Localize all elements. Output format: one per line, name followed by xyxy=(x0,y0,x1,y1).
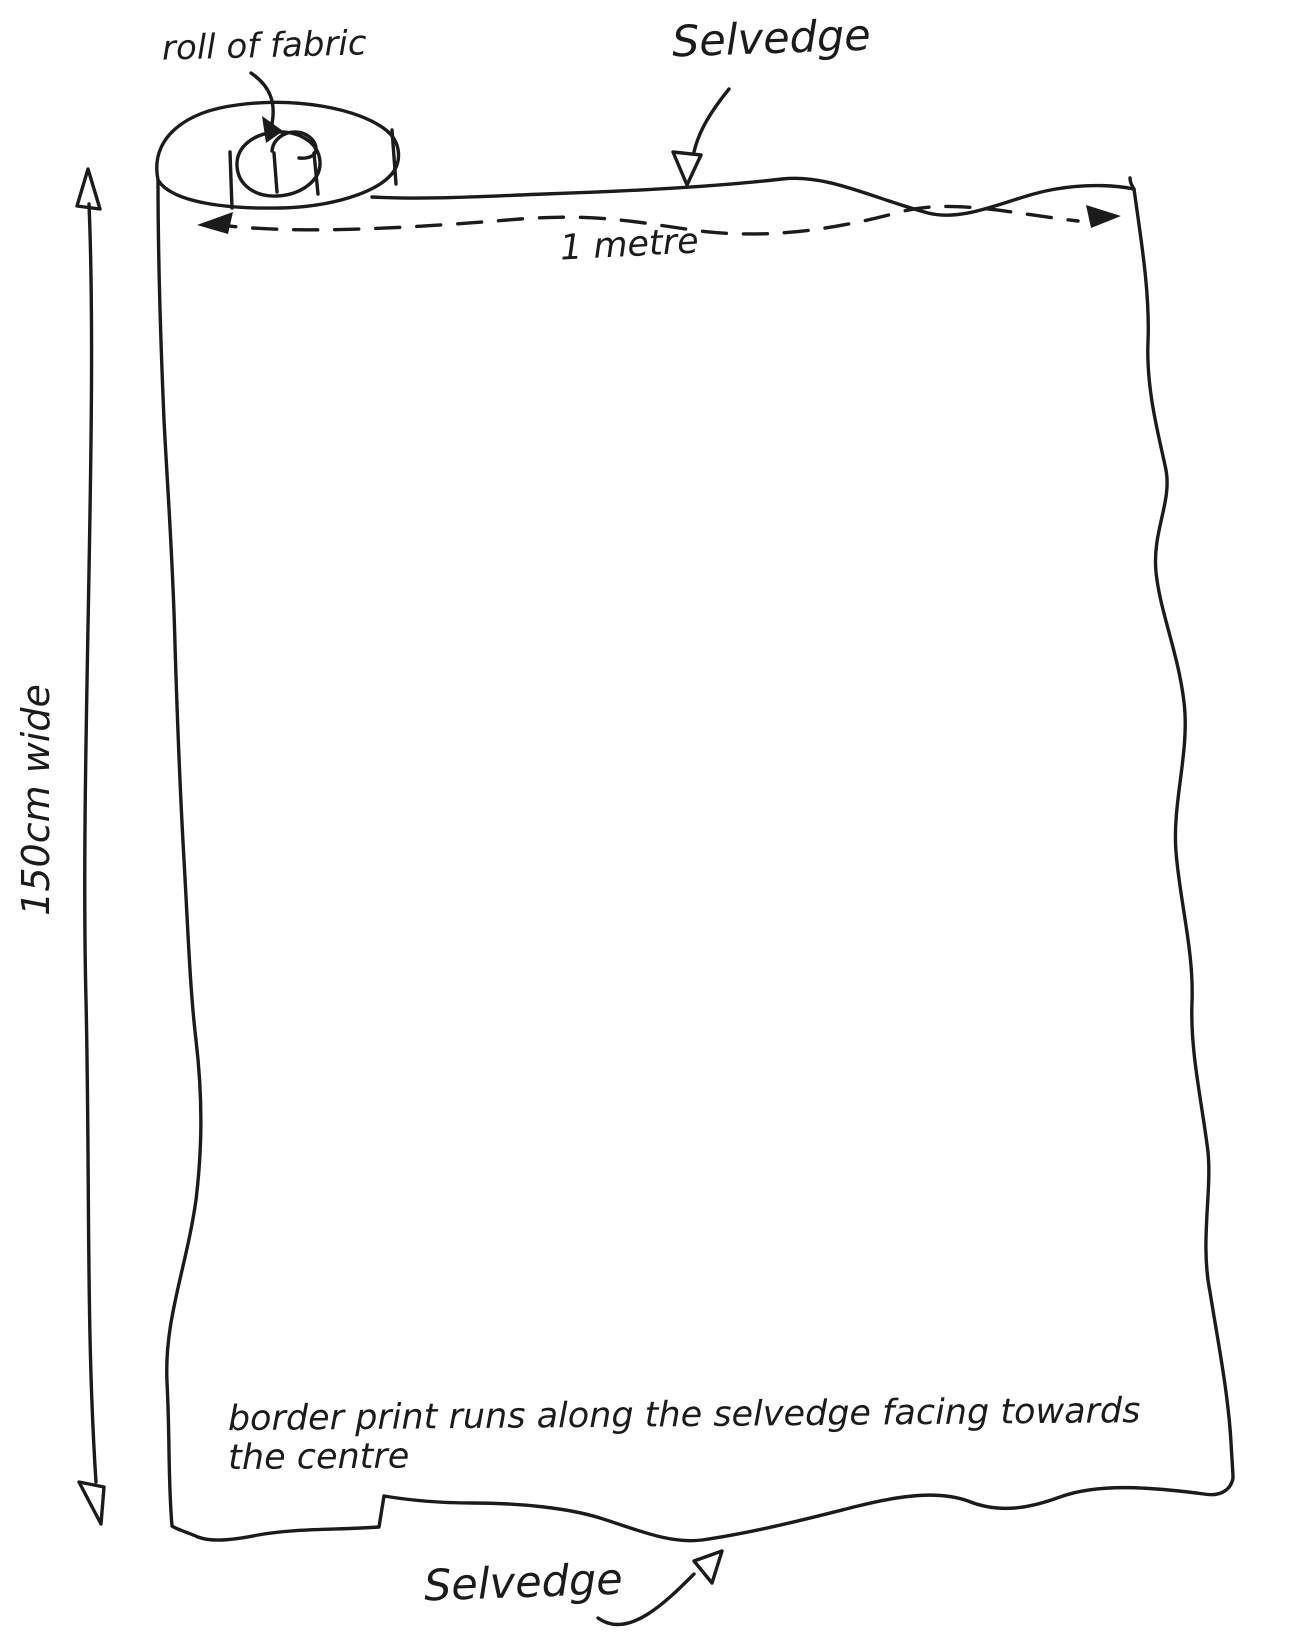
roll-of-fabric-drawing xyxy=(157,102,399,208)
one-metre-arrowhead-right xyxy=(1086,205,1121,228)
fabric-outline xyxy=(158,178,1233,1540)
width-label: 150cm wide xyxy=(16,684,58,916)
selvedge-bottom-arrowhead xyxy=(694,1551,722,1583)
one-metre-label: 1 metre xyxy=(559,222,699,268)
width-arrowhead-bottom xyxy=(79,1482,104,1524)
selvedge-bottom-label: Selvedge xyxy=(423,1557,623,1611)
selvedge-top-arrowhead xyxy=(673,152,701,185)
selvedge-top-arrow-shaft xyxy=(694,89,729,152)
width-measure xyxy=(77,169,104,1524)
one-metre-arrowhead-left xyxy=(197,212,233,234)
border-print-label: border print runs along the selvedge fac… xyxy=(228,1392,1169,1477)
roll-label-arrow xyxy=(251,73,283,143)
roll-inner-line xyxy=(230,152,232,208)
roll-core xyxy=(272,132,316,158)
selvedge-top-arrow xyxy=(673,89,729,185)
roll-core-right-line xyxy=(314,153,318,194)
roll-of-fabric-label: roll of fabric xyxy=(162,25,367,68)
selvedge-top-label: Selvedge xyxy=(671,13,871,67)
fabric-diagram: roll of fabric Selvedge 1 metre 150cm wi… xyxy=(0,0,1312,1649)
width-measure-line xyxy=(85,204,96,1482)
roll-middle-wrap xyxy=(237,132,320,196)
roll-core-left-line xyxy=(274,153,277,192)
